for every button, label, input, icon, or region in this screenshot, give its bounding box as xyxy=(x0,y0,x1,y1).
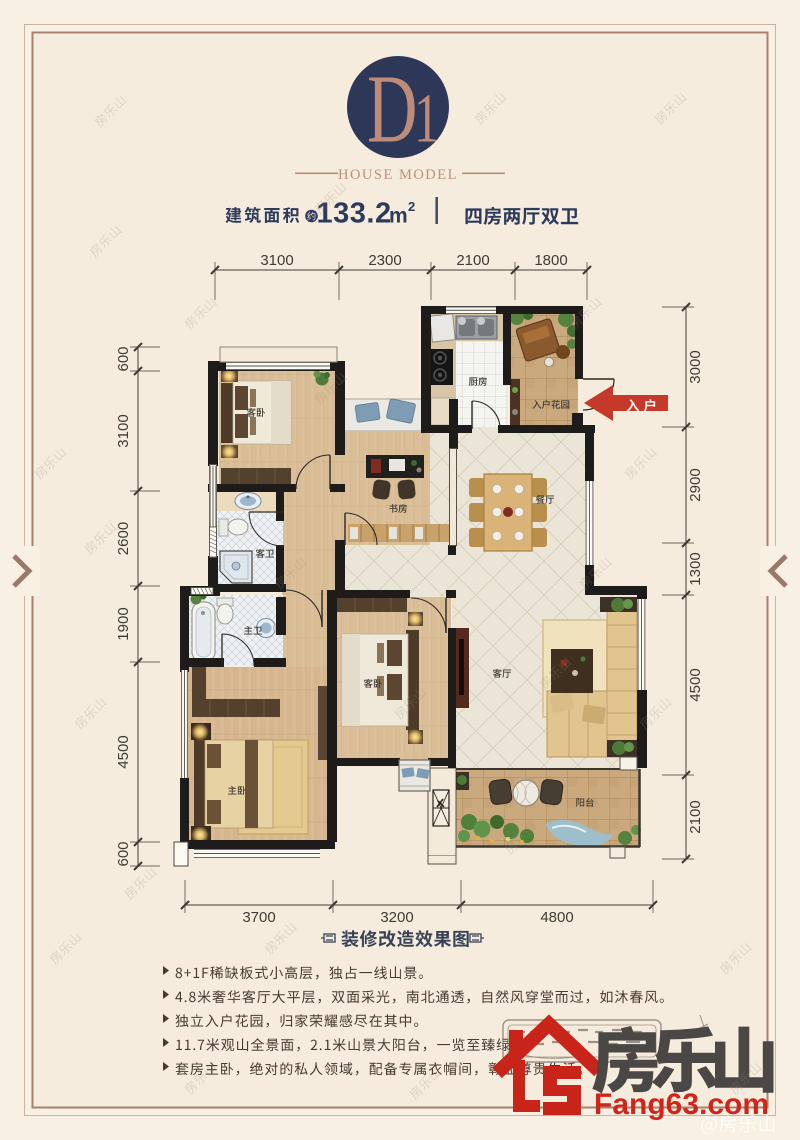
svg-text:4500: 4500 xyxy=(115,735,132,768)
svg-text:2: 2 xyxy=(408,199,415,214)
svg-text:2100: 2100 xyxy=(687,800,704,833)
svg-text:2300: 2300 xyxy=(368,252,401,269)
svg-text:4800: 4800 xyxy=(540,909,573,926)
svg-text:Fang63.com: Fang63.com xyxy=(594,1088,769,1121)
svg-text:HOUSE MODEL: HOUSE MODEL xyxy=(338,167,458,183)
svg-text:600: 600 xyxy=(115,346,132,371)
svg-text:1900: 1900 xyxy=(115,607,132,640)
svg-text:2600: 2600 xyxy=(115,522,132,555)
svg-text:3000: 3000 xyxy=(687,350,704,383)
svg-text:1800: 1800 xyxy=(534,252,567,269)
svg-text:3100: 3100 xyxy=(260,252,293,269)
svg-text:600: 600 xyxy=(115,841,132,866)
svg-text:2100: 2100 xyxy=(456,252,489,269)
svg-text:3100: 3100 xyxy=(115,414,132,447)
svg-text:3700: 3700 xyxy=(242,909,275,926)
svg-text:D: D xyxy=(367,57,417,164)
svg-text:1: 1 xyxy=(414,81,439,158)
svg-text:4500: 4500 xyxy=(687,668,704,701)
svg-text:3200: 3200 xyxy=(380,909,413,926)
svg-text:1300: 1300 xyxy=(687,552,704,585)
svg-text:m: m xyxy=(389,205,408,228)
svg-text:2900: 2900 xyxy=(687,468,704,501)
svg-text:133.2: 133.2 xyxy=(317,198,392,230)
